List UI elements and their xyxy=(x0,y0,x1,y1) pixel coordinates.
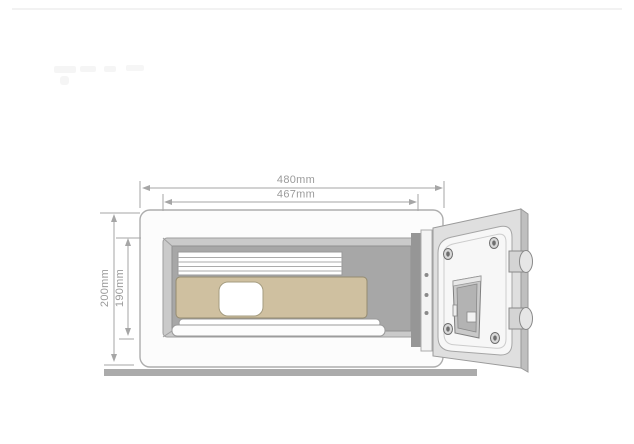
battery-compartment xyxy=(453,276,481,338)
screw xyxy=(490,238,499,249)
battery-compartment-tab xyxy=(467,312,476,322)
laptop-logo xyxy=(219,282,263,316)
floor-line xyxy=(104,369,477,376)
interior-shelf xyxy=(172,319,385,336)
screw xyxy=(444,324,453,335)
laptop-body xyxy=(176,277,367,318)
battery-compartment-recess xyxy=(457,284,477,332)
hinge-shadow xyxy=(411,233,421,347)
paper-stack-body xyxy=(178,252,342,275)
watermark-blob xyxy=(126,65,144,71)
locking-bolt xyxy=(509,308,533,330)
paper-stack xyxy=(178,252,342,275)
hinge-pin xyxy=(425,273,429,277)
hinge-pin xyxy=(425,293,429,297)
safe-dimension-diagram: 480mm 467mm 200mm 190mm xyxy=(0,0,634,444)
watermark-blob xyxy=(54,66,76,73)
door-edge xyxy=(521,209,528,372)
laptop xyxy=(176,277,367,318)
dim-inner-height-label: 190mm xyxy=(114,269,126,307)
hinge-pin xyxy=(425,311,429,315)
watermark-blob xyxy=(60,76,69,85)
hinge-plate xyxy=(421,230,432,351)
screw xyxy=(444,249,453,260)
locking-bolt xyxy=(509,251,533,273)
screw xyxy=(491,333,500,344)
battery-compartment-latch xyxy=(453,305,457,316)
safe-dimension-diagram-page: 480mm 467mm 200mm 190mm xyxy=(0,0,634,444)
shelf-front xyxy=(172,325,385,336)
dim-outer-height-label: 200mm xyxy=(99,269,111,307)
safe-door xyxy=(433,209,533,372)
dim-inner-width-label: 467mm xyxy=(277,189,315,201)
watermark-blob xyxy=(104,66,116,72)
dim-outer-width-label: 480mm xyxy=(277,174,315,186)
watermark-blob xyxy=(80,66,96,72)
